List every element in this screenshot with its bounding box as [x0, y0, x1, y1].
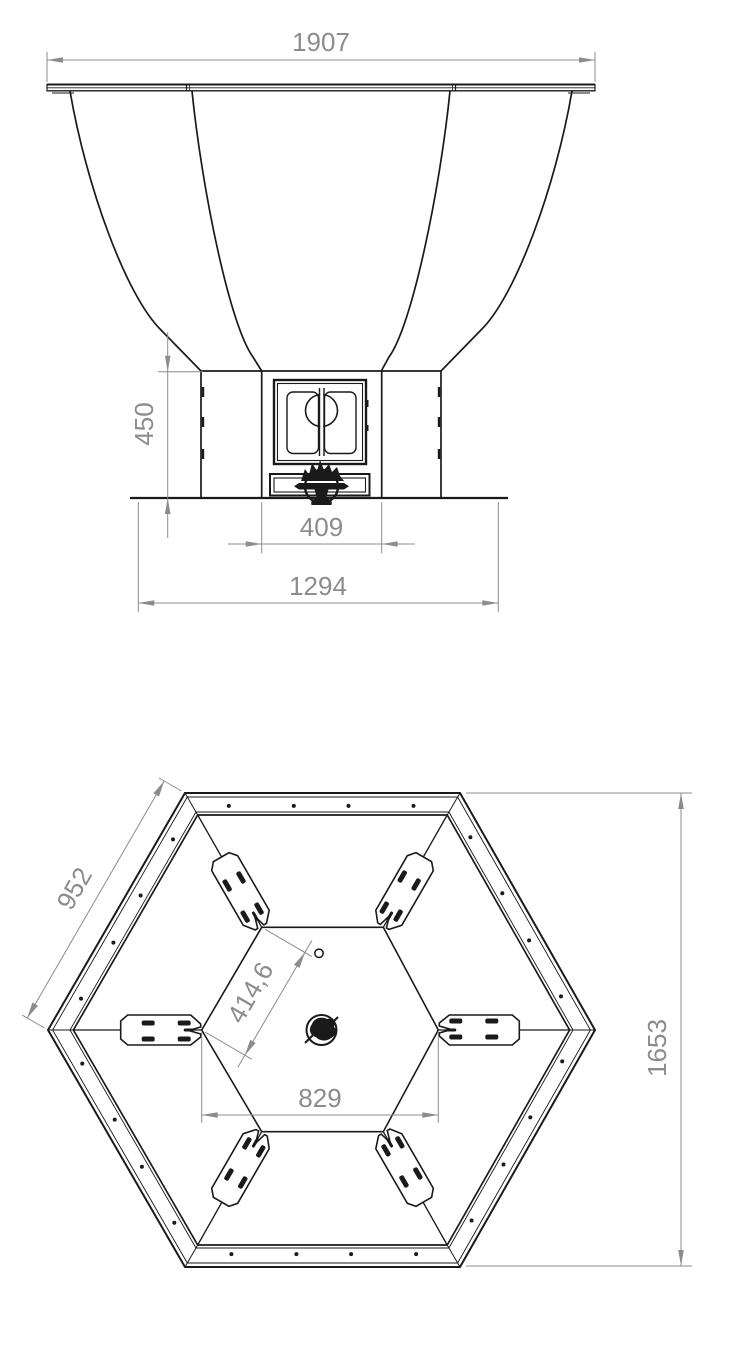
bracket-bottom-right: [371, 1125, 437, 1209]
bowl-body: [70, 91, 572, 371]
front-elevation-view: 1907: [47, 27, 595, 612]
dimension-label-450: 450: [129, 402, 159, 445]
pedestal-door: [274, 380, 368, 464]
dimension-label-409: 409: [300, 512, 343, 542]
dimension-rim-width: 1907: [47, 27, 595, 82]
dimension-inner-edge: 414,6: [205, 929, 312, 1067]
bracket-bottom-left: [208, 1125, 274, 1209]
plan-view: 952 414,6 829 1653: [22, 778, 692, 1267]
dimension-base-height: 450: [129, 332, 203, 538]
center-logo: [305, 1015, 338, 1045]
dimension-label-1907: 1907: [292, 27, 350, 57]
bowl-rim: [47, 84, 595, 93]
pilot-hole: [315, 949, 323, 957]
bracket-right: [439, 1015, 519, 1045]
dimension-label-829: 829: [298, 1083, 341, 1113]
technical-drawing: 1907: [0, 0, 736, 1364]
dimension-label-1294: 1294: [289, 571, 347, 601]
dimension-door-width: 409: [228, 502, 415, 553]
bracket-top-right: [371, 850, 437, 934]
bracket-top-left: [208, 850, 274, 934]
drawing-canvas: 1907: [0, 0, 736, 1364]
bracket-left: [121, 1015, 201, 1045]
dimension-label-414-6: 414,6: [221, 957, 280, 1028]
dimension-outer-edge: 952: [22, 778, 182, 1028]
dimension-label-1653: 1653: [642, 1019, 672, 1077]
